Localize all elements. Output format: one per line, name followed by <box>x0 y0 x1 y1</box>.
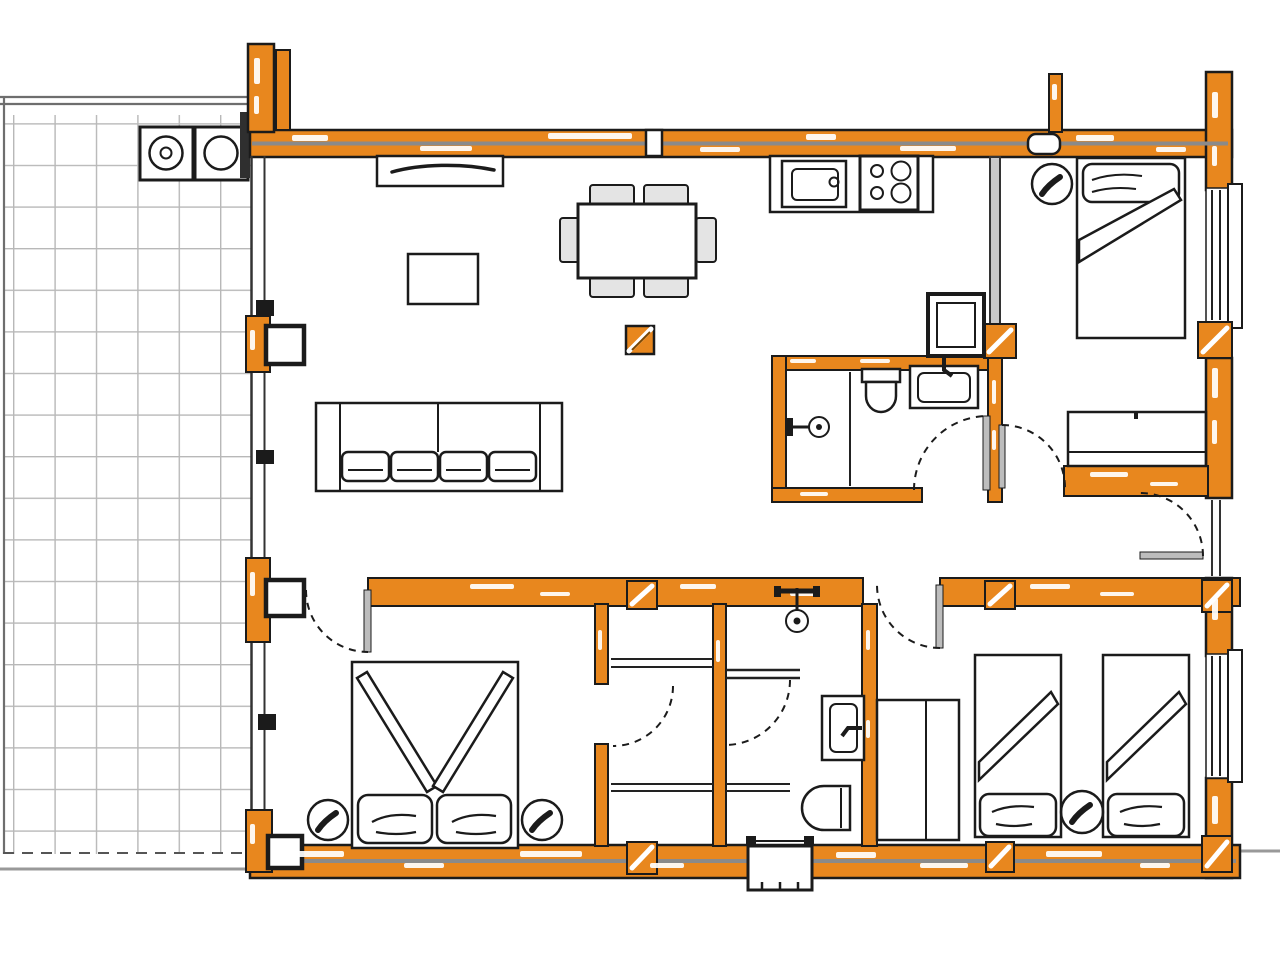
dining-set <box>560 185 716 297</box>
bedroom-top-right <box>1032 158 1206 466</box>
wall-right-upper <box>1206 72 1232 190</box>
bedroom-tr-wall-bottom <box>1064 466 1208 496</box>
terrace-tile-grid <box>3 115 251 854</box>
refrigerator <box>928 294 984 356</box>
bedroom-bottom-left <box>308 662 562 848</box>
bedside-lamp-icon <box>522 800 562 840</box>
post-icon <box>1202 836 1232 872</box>
floor-plan-drawing <box>0 0 1280 960</box>
living-dining-room <box>316 156 716 491</box>
kitchen <box>770 156 984 356</box>
pillow <box>437 795 511 843</box>
window-hall-nook <box>1212 500 1220 576</box>
window-bedroom-bottom-right <box>1206 650 1242 782</box>
washbasin <box>910 358 978 408</box>
door-bathroom-1 <box>914 416 990 490</box>
shower-head-icon <box>774 586 820 632</box>
sofa-cushions <box>342 452 536 481</box>
bathroom-2 <box>774 586 864 830</box>
bedside-lamp-icon <box>1032 164 1072 204</box>
shower-head-icon <box>786 417 829 437</box>
dining-table <box>578 204 696 278</box>
bathroom1-wall-left <box>772 356 786 502</box>
sofa <box>316 403 562 491</box>
bathroom-1 <box>786 358 978 486</box>
door-hall-nook <box>1140 493 1203 559</box>
toilet <box>802 786 850 830</box>
bathroom2-screen-wall <box>726 670 800 678</box>
window-bedroom-top-right <box>1206 184 1242 328</box>
tv-table <box>408 254 478 304</box>
mullion-tick-2 <box>256 450 274 464</box>
bathroom1-wall-bottom <box>772 488 922 502</box>
bedroom-bottom-right <box>877 655 1189 840</box>
mullion-tick-1 <box>256 300 274 316</box>
column-box-1 <box>266 326 304 364</box>
desk <box>1068 412 1206 466</box>
kitchen-partition <box>990 157 1000 324</box>
door-bedroom-bottom-left <box>306 590 371 652</box>
glazed-wall-left <box>246 156 304 872</box>
double-bed <box>352 662 518 848</box>
cooktop-4-burner <box>860 156 918 210</box>
post-icon <box>984 324 1016 358</box>
closet-wall-left-lower <box>595 744 608 846</box>
column-box-2 <box>266 580 304 616</box>
closet-wall-right <box>713 604 726 846</box>
toilet <box>862 369 900 412</box>
wardrobe <box>877 700 959 840</box>
bedside-lamp-icon <box>308 800 348 840</box>
pillow <box>980 794 1056 836</box>
door-bedroom-top-right <box>999 425 1065 488</box>
wall-right-mid <box>1206 358 1232 498</box>
pillow <box>1108 794 1184 836</box>
single-bed <box>1103 655 1189 837</box>
pillow <box>358 795 432 843</box>
single-bed <box>975 655 1061 837</box>
post-icon <box>986 842 1014 872</box>
dining-chair <box>696 218 716 262</box>
mullion-tick-3 <box>258 714 276 730</box>
wall-stub-top-left-2 <box>276 50 290 130</box>
door-closet <box>613 686 673 746</box>
post-icon <box>1198 322 1232 358</box>
door-bathroom-2 <box>725 680 790 745</box>
floor-plan-canvas <box>0 0 1280 960</box>
post-icon <box>627 842 657 874</box>
single-bed <box>1077 158 1185 338</box>
round-bedside-table-icon <box>1061 791 1103 833</box>
post-icon <box>985 581 1015 609</box>
washbasin <box>822 696 864 760</box>
chimney-stub <box>1049 74 1062 132</box>
washing-machine <box>140 127 193 180</box>
wall-stub-top-left <box>248 44 274 132</box>
sideboard <box>377 156 503 186</box>
post-icon <box>627 581 657 609</box>
door-bedroom-bottom-right <box>877 585 943 648</box>
floor-marker <box>626 326 654 354</box>
